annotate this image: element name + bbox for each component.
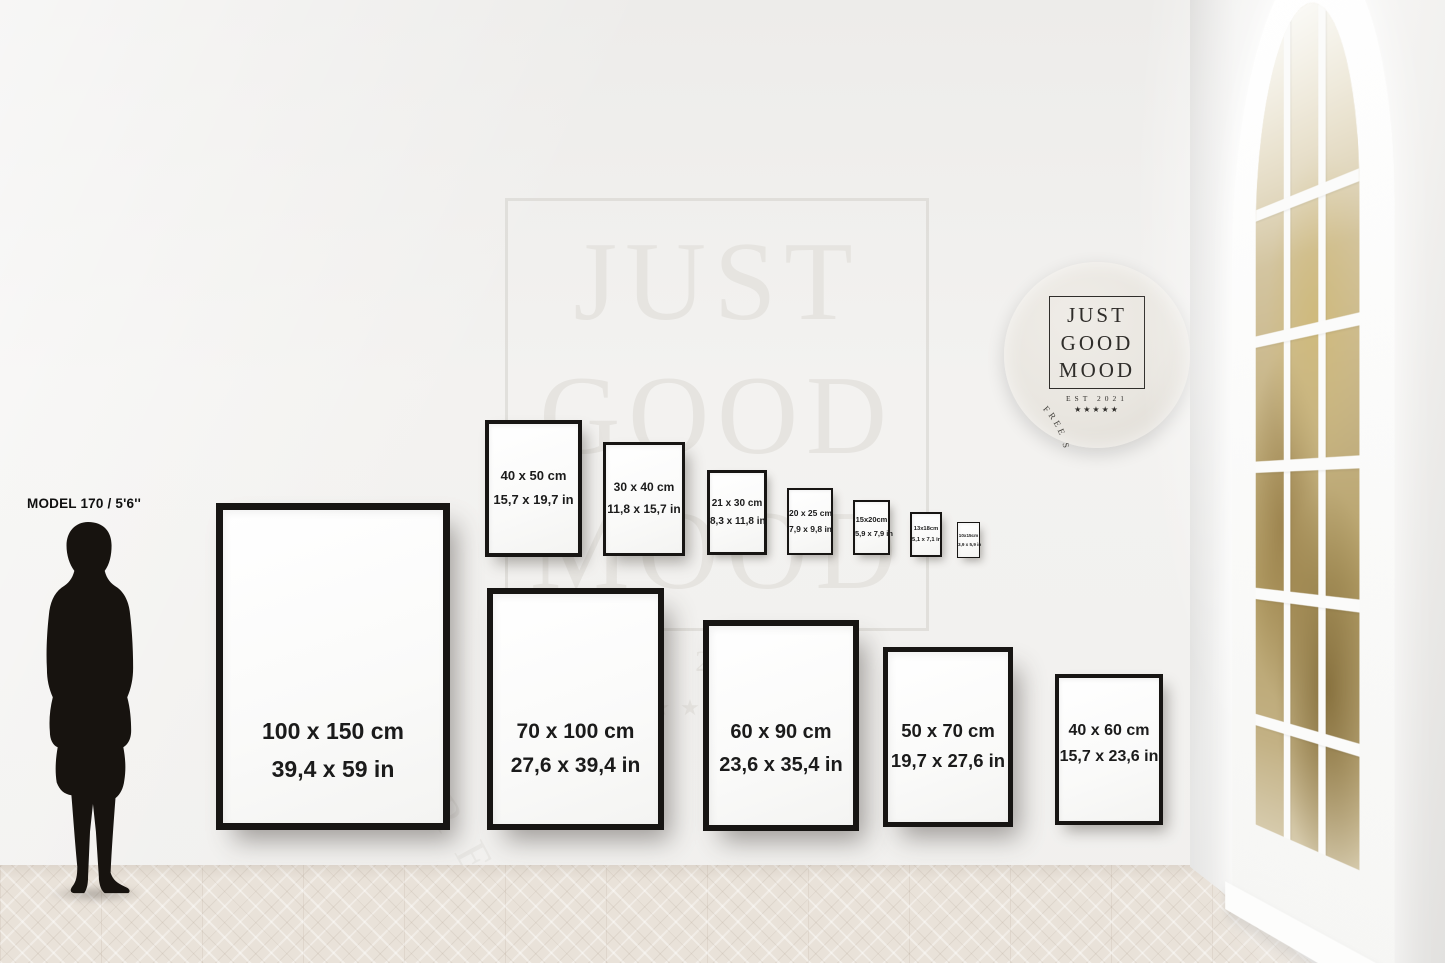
frame-size-in: 3,9 x 5,9 in [958,542,979,547]
size-frame-70x100: 70 x 100 cm27,6 x 39,4 in [487,588,664,830]
frame-size-in: 5,9 x 7,9 in [855,530,888,539]
size-frame-21x30: 21 x 30 cm8,3 x 11,8 in [707,470,767,555]
model-height-label: MODEL 170 / 5'6'' [27,496,141,511]
badge-est: EST 2021 [1066,394,1128,403]
frame-size-cm: 70 x 100 cm [493,720,658,744]
frame-size-cm: 21 x 30 cm [710,498,764,510]
frame-size-in: 8,3 x 11,8 in [710,516,764,528]
frame-size-in: 15,7 x 23,6 in [1059,748,1159,766]
frame-size-cm: 50 x 70 cm [888,720,1008,741]
window-muntin [1256,312,1360,348]
window-muntin [1256,714,1360,757]
size-frame-10x15: 10x15cm3,9 x 5,9 in [957,522,980,558]
window-muntin [1256,168,1360,222]
badge-stars: ★★★★★ [1074,405,1120,414]
size-frame-60x90: 60 x 90 cm23,6 x 35,4 in [703,620,859,831]
badge-logo-box: JUST GOOD MOOD [1049,296,1145,389]
watermark-logo-box: JUST GOOD MOOD [505,198,929,631]
frame-size-in: 7,9 x 9,8 in [789,525,831,535]
watermark-word: GOOD [530,349,904,483]
size-frame-20x25: 20 x 25 cm7,9 x 9,8 in [787,488,833,555]
size-frame-40x50: 40 x 50 cm15,7 x 19,7 in [485,420,582,557]
frame-size-in: 27,6 x 39,4 in [493,754,658,778]
frame-size-in: 19,7 x 27,6 in [888,750,1008,771]
frame-size-in: 5,1 x 7,1 in [912,537,940,544]
brand-badge: FREE SHIPPING · PREMIUM POSTER · HIGH QU… [1004,262,1190,448]
frame-size-in: 23,6 x 35,4 in [709,754,853,777]
size-frame-100x150: 100 x 150 cm39,4 x 59 in [216,503,450,830]
window-muntin [1256,588,1360,613]
watermark-word: JUST [530,215,904,349]
arched-window [1232,0,1403,963]
size-frame-50x70: 50 x 70 cm19,7 x 27,6 in [883,647,1013,827]
frame-size-cm: 13x18cm [912,526,940,533]
window-muntin [1284,14,1291,840]
frame-size-cm: 15x20cm [855,516,888,525]
frame-size-in: 15,7 x 19,7 in [489,493,578,508]
frame-size-cm: 30 x 40 cm [606,481,682,495]
badge-word: MOOD [1059,357,1135,385]
frame-size-cm: 40 x 60 cm [1059,722,1159,740]
size-frame-15x20: 15x20cm5,9 x 7,9 in [853,500,890,555]
poster-size-guide-mockup: FREE SHIPPING · PREMIUM POSTER · HIGH QU… [0,0,1445,963]
frame-size-cm: 20 x 25 cm [789,509,831,519]
size-frame-13x18: 13x18cm5,1 x 7,1 in [910,512,942,557]
person-silhouette [25,520,157,902]
window-frame [1232,0,1395,963]
frame-size-cm: 100 x 150 cm [223,718,443,744]
frame-size-in: 39,4 x 59 in [223,756,443,782]
badge-word: GOOD [1059,330,1135,358]
window-muntin [1318,0,1325,855]
size-frame-40x60: 40 x 60 cm15,7 x 23,6 in [1055,674,1163,825]
window-muntin [1256,456,1360,474]
frame-size-in: 11,8 x 15,7 in [606,503,682,517]
frame-size-cm: 40 x 50 cm [489,469,578,484]
frame-size-cm: 10x15cm [958,533,979,538]
badge-word: JUST [1059,302,1135,330]
size-frame-30x40: 30 x 40 cm11,8 x 15,7 in [603,442,685,556]
frame-size-cm: 60 x 90 cm [709,721,853,744]
window-glass [1256,0,1360,870]
